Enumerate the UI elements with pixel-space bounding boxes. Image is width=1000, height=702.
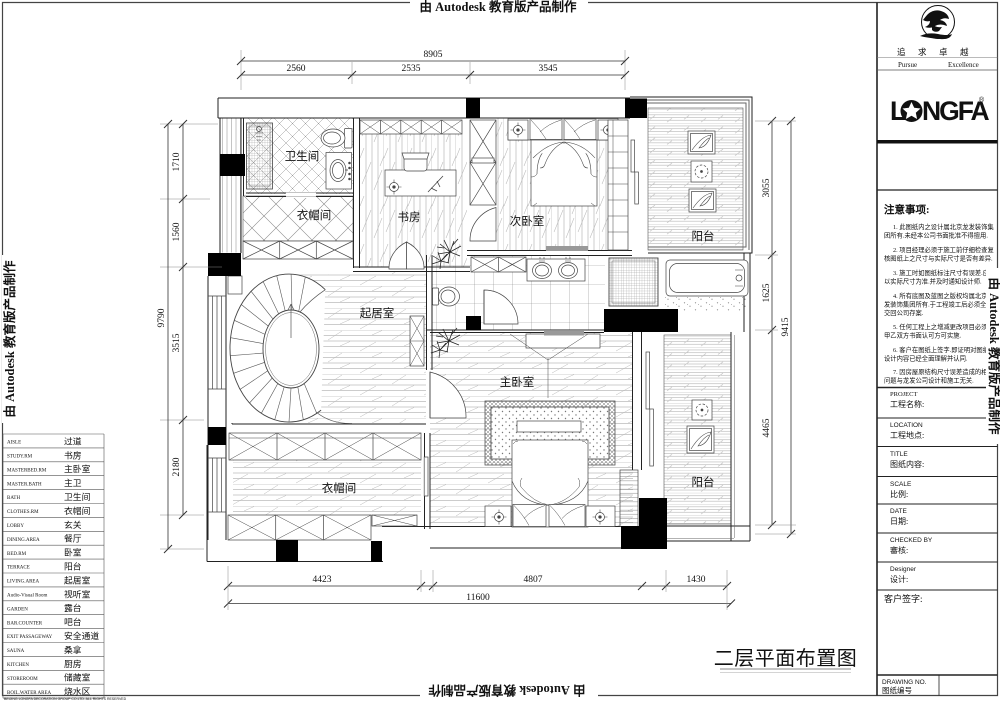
- svg-text:设计:: 设计:: [890, 574, 908, 584]
- svg-text:卫生间: 卫生间: [285, 149, 320, 163]
- svg-text:工程地点:: 工程地点:: [890, 430, 924, 440]
- svg-text:6. 客户在图纸上签字.即证明对图纸: 6. 客户在图纸上签字.即证明对图纸: [893, 345, 990, 354]
- svg-text:1625: 1625: [762, 283, 772, 302]
- svg-text:BAR.COUNTER: BAR.COUNTER: [7, 621, 43, 626]
- svg-text:AISLE: AISLE: [7, 441, 21, 446]
- svg-text:4423: 4423: [313, 575, 332, 585]
- svg-text:DRAWING NO.: DRAWING NO.: [882, 679, 927, 686]
- svg-text:图纸编号: 图纸编号: [882, 685, 912, 695]
- svg-text:阳台: 阳台: [64, 561, 82, 572]
- svg-text:審核:: 審核:: [890, 545, 908, 555]
- svg-text:烧水区: 烧水区: [64, 686, 91, 697]
- svg-text:PROJECT: PROJECT: [890, 391, 917, 398]
- svg-text:二层平面布置图: 二层平面布置图: [714, 647, 858, 670]
- svg-text:主卫: 主卫: [64, 477, 82, 488]
- svg-text:桑拿: 桑拿: [64, 644, 82, 655]
- svg-text:MASTER.BATH: MASTER.BATH: [7, 482, 42, 487]
- svg-text:Designer: Designer: [890, 566, 917, 573]
- svg-text:BOIL.WATER AREA: BOIL.WATER AREA: [7, 691, 52, 696]
- svg-text:安全通道: 安全通道: [64, 630, 99, 641]
- svg-text:BEIJING LONGFA DECORATION GROU: BEIJING LONGFA DECORATION GROUP CO.LTD. …: [4, 697, 127, 701]
- svg-text:3545: 3545: [539, 64, 558, 74]
- svg-text:1. 此图纸内之设计属北京龙发装饰集: 1. 此图纸内之设计属北京龙发装饰集: [893, 222, 994, 231]
- svg-text:3055: 3055: [762, 178, 772, 197]
- svg-text:比例:: 比例:: [890, 489, 908, 499]
- svg-text:起居室: 起居室: [64, 574, 91, 585]
- svg-text:问题与龙发公司设计和施工无关.: 问题与龙发公司设计和施工无关.: [884, 376, 974, 385]
- svg-text:书房: 书房: [64, 449, 82, 460]
- svg-text:视听室: 视听室: [64, 588, 91, 599]
- svg-text:MASTERBED.RM: MASTERBED.RM: [7, 468, 47, 473]
- svg-text:玄关: 玄关: [64, 519, 82, 530]
- svg-text:衣帽间: 衣帽间: [322, 481, 357, 495]
- svg-text:3515: 3515: [172, 333, 182, 352]
- svg-text:核图纸上之尺寸与实际尺寸是否有差异.: 核图纸上之尺寸与实际尺寸是否有差异.: [884, 254, 993, 263]
- svg-text:LIVING.AREA: LIVING.AREA: [7, 580, 39, 585]
- svg-text:TITLE: TITLE: [890, 451, 908, 458]
- svg-text:9415: 9415: [781, 317, 791, 336]
- svg-text:SCALE: SCALE: [890, 481, 912, 488]
- svg-text:2535: 2535: [402, 64, 421, 74]
- svg-text:追: 追: [897, 47, 906, 57]
- svg-text:Pursue: Pursue: [898, 61, 917, 69]
- svg-text:日期:: 日期:: [890, 517, 908, 526]
- svg-text:BED.RM: BED.RM: [7, 552, 27, 557]
- svg-text:STUDY.RM: STUDY.RM: [7, 455, 33, 460]
- svg-text:9790: 9790: [157, 308, 167, 327]
- svg-text:衣帽间: 衣帽间: [297, 208, 332, 222]
- svg-text:EXIT PASSAGEWAY: EXIT PASSAGEWAY: [7, 635, 53, 640]
- svg-text:厨房: 厨房: [64, 658, 82, 669]
- svg-text:1710: 1710: [172, 152, 182, 171]
- svg-text:卧室: 卧室: [64, 547, 82, 558]
- svg-text:DATE: DATE: [890, 508, 908, 515]
- svg-text:SAUNA: SAUNA: [7, 649, 25, 654]
- svg-text:交回公司存案.: 交回公司存案.: [884, 308, 924, 317]
- svg-text:Excellence: Excellence: [948, 61, 979, 69]
- svg-text:2560: 2560: [287, 64, 306, 74]
- svg-text:DINING.AREA: DINING.AREA: [7, 538, 40, 543]
- svg-text:4807: 4807: [524, 575, 543, 585]
- svg-text:发装饰集团所有.于工程竣工后必须全数: 发装饰集团所有.于工程竣工后必须全数: [884, 300, 993, 309]
- svg-text:次卧室: 次卧室: [510, 214, 545, 228]
- svg-text:TERRACE: TERRACE: [7, 566, 30, 571]
- svg-text:由 Autodesk 教育版产品制作: 由 Autodesk 教育版产品制作: [987, 278, 1000, 435]
- svg-text:1560: 1560: [172, 222, 182, 241]
- svg-text:STOREROOM: STOREROOM: [7, 677, 38, 682]
- svg-text:甲乙双方书面认可方可实施.: 甲乙双方书面认可方可实施.: [884, 331, 962, 340]
- svg-text:LOCATION: LOCATION: [890, 422, 923, 429]
- svg-text:LOBBY: LOBBY: [7, 524, 24, 529]
- svg-text:主卧室: 主卧室: [64, 463, 91, 474]
- svg-text:BATH: BATH: [7, 496, 20, 501]
- svg-text:®: ®: [979, 96, 985, 104]
- svg-text:7. 因房屋原结构尺寸误差造成的相关: 7. 因房屋原结构尺寸误差造成的相关: [893, 367, 994, 376]
- svg-text:设计内容已经全面理解并认同.: 设计内容已经全面理解并认同.: [884, 354, 968, 363]
- svg-text:GARDEN: GARDEN: [7, 607, 28, 612]
- svg-text:衣帽间: 衣帽间: [64, 505, 91, 516]
- svg-text:卫生间: 卫生间: [64, 491, 91, 502]
- svg-text:4465: 4465: [762, 418, 772, 437]
- svg-text:1430: 1430: [687, 575, 706, 585]
- svg-text:阳台: 阳台: [692, 229, 715, 243]
- svg-text:储藏室: 储藏室: [64, 672, 91, 683]
- svg-text:Audio-Visual Room: Audio-Visual Room: [7, 594, 48, 599]
- svg-text:餐厅: 餐厅: [64, 533, 82, 544]
- svg-text:11600: 11600: [466, 593, 490, 603]
- svg-text:卓: 卓: [939, 47, 948, 57]
- svg-text:阳台: 阳台: [692, 475, 715, 489]
- svg-text:以实际尺寸为准.并及时通知设计师.: 以实际尺寸为准.并及时通知设计师.: [884, 277, 982, 286]
- svg-text:由 Autodesk 教育版产品制作: 由 Autodesk 教育版产品制作: [420, 0, 577, 14]
- svg-text:3. 施工时如图纸标注尺寸有误差.应: 3. 施工时如图纸标注尺寸有误差.应: [893, 268, 990, 277]
- svg-text:由 Autodesk 教育版产品制作: 由 Autodesk 教育版产品制作: [2, 260, 17, 417]
- svg-text:5. 任何工程上之增减更改项目必须由: 5. 任何工程上之增减更改项目必须由: [893, 322, 994, 331]
- svg-text:CLOTHES.RM: CLOTHES.RM: [7, 510, 39, 515]
- svg-text:CHECKED BY: CHECKED BY: [890, 537, 933, 544]
- svg-text:由 Autodesk 教育版产品制作: 由 Autodesk 教育版产品制作: [428, 683, 585, 698]
- svg-text:主卧室: 主卧室: [500, 375, 535, 389]
- svg-text:求: 求: [918, 47, 927, 57]
- svg-text:图纸内容:: 图纸内容:: [890, 459, 924, 469]
- svg-text:KITCHEN: KITCHEN: [7, 663, 29, 668]
- svg-text:书房: 书房: [398, 211, 421, 224]
- svg-text:露台: 露台: [64, 602, 82, 613]
- svg-text:2. 项目经理必须于施工前仔细检查复: 2. 项目经理必须于施工前仔细检查复: [893, 245, 994, 254]
- svg-text:吧台: 吧台: [64, 616, 82, 627]
- svg-text:注意事项:: 注意事项:: [884, 203, 930, 216]
- svg-text:过道: 过道: [64, 435, 82, 446]
- svg-text:2180: 2180: [172, 457, 182, 476]
- svg-text:工程名称:: 工程名称:: [890, 399, 924, 409]
- svg-text:越: 越: [960, 47, 969, 57]
- svg-text:8905: 8905: [424, 50, 443, 60]
- svg-text:客户签字:: 客户签字:: [884, 593, 923, 604]
- svg-text:起居室: 起居室: [360, 306, 395, 320]
- svg-text:4. 所有底图及蓝图之版权均属北京龙: 4. 所有底图及蓝图之版权均属北京龙: [893, 291, 994, 300]
- svg-text:团所有.未经本公司书面批准不得擅用.: 团所有.未经本公司书面批准不得擅用.: [884, 231, 988, 240]
